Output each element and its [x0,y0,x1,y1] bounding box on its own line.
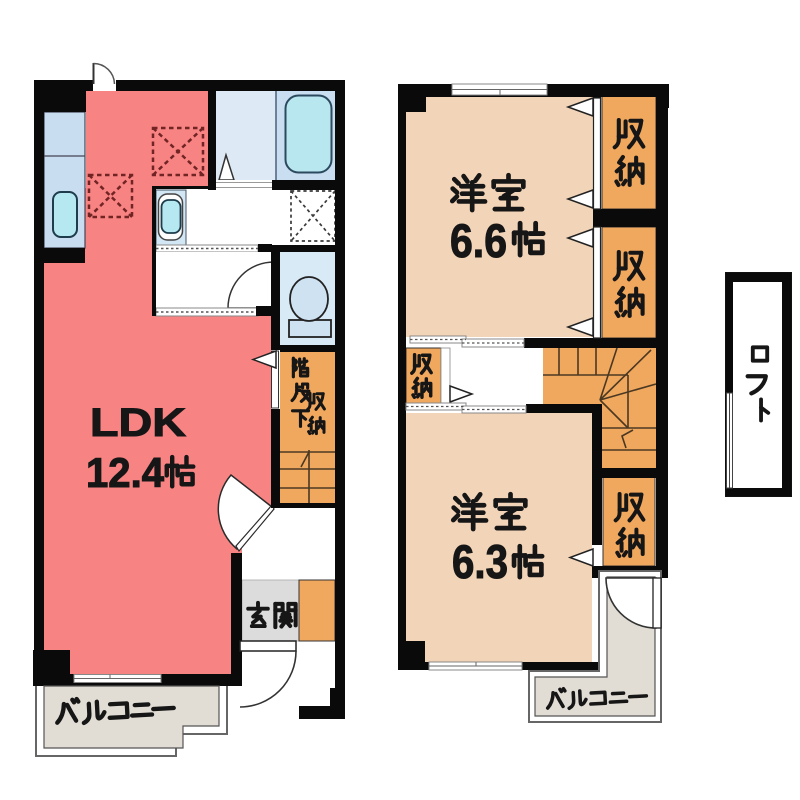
svg-text:6.6: 6.6 [450,214,507,267]
svg-text:6.3: 6.3 [452,535,508,588]
svg-text:12.4: 12.4 [86,449,165,496]
svg-text:LDK: LDK [90,401,186,445]
